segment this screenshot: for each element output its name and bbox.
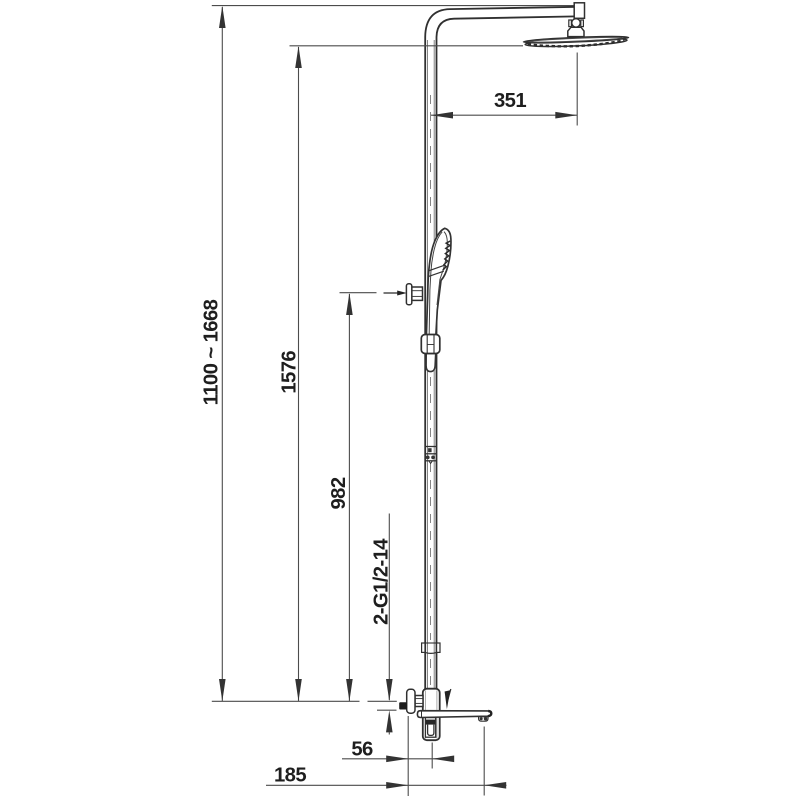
- svg-text:1100 ~ 1668: 1100 ~ 1668: [201, 299, 223, 405]
- svg-text:1576: 1576: [279, 351, 301, 394]
- svg-text:2-G1/2-14: 2-G1/2-14: [371, 538, 393, 625]
- svg-text:982: 982: [328, 477, 350, 509]
- svg-text:185: 185: [274, 765, 306, 787]
- svg-text:351: 351: [494, 90, 526, 112]
- svg-text:56: 56: [351, 739, 373, 761]
